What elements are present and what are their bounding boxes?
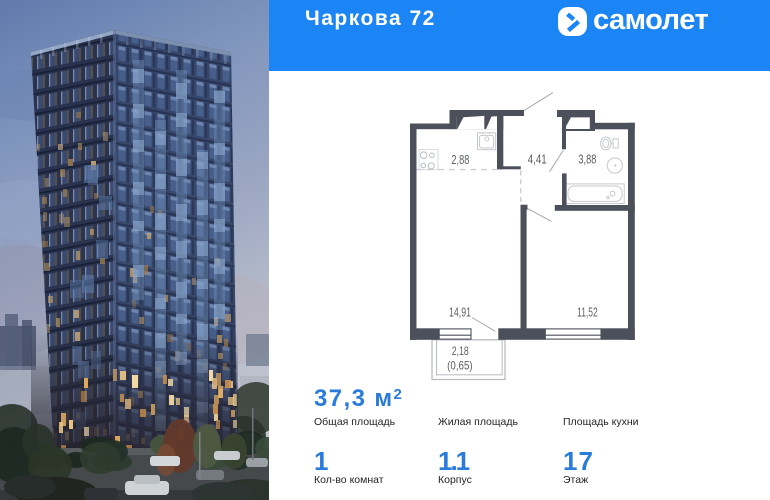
svg-text:(0,65): (0,65) — [447, 359, 473, 373]
svg-text:14,91: 14,91 — [449, 305, 471, 320]
svg-text:3,88: 3,88 — [578, 152, 596, 167]
svg-text:11,52: 11,52 — [577, 305, 598, 320]
svg-text:2,88: 2,88 — [451, 152, 469, 167]
svg-text:4,41: 4,41 — [528, 152, 547, 167]
svg-text:2,18: 2,18 — [452, 344, 469, 358]
